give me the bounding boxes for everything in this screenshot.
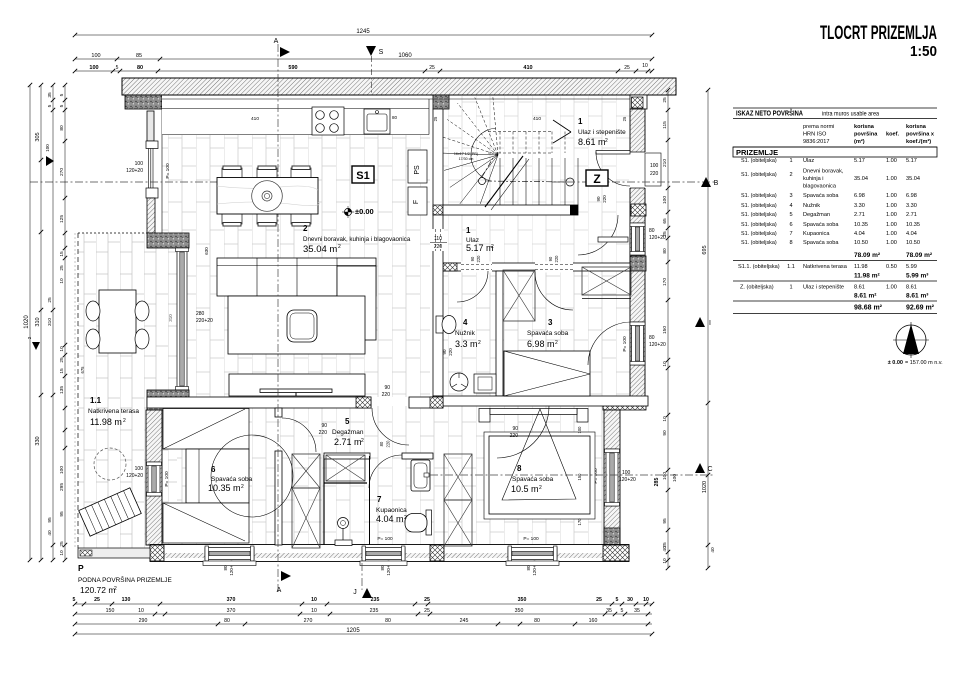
svg-text:10.50: 10.50 xyxy=(906,240,920,246)
svg-text:10: 10 xyxy=(662,416,668,422)
svg-text:85: 85 xyxy=(136,53,142,59)
svg-text:1.00: 1.00 xyxy=(886,285,897,291)
svg-text:90: 90 xyxy=(321,423,327,429)
svg-text:S1. (obiteljska): S1. (obiteljska) xyxy=(741,158,777,164)
svg-text:8.61: 8.61 xyxy=(854,285,865,291)
svg-text:0.50: 0.50 xyxy=(886,264,897,270)
svg-text:220: 220 xyxy=(510,433,519,439)
svg-text:100: 100 xyxy=(135,466,144,472)
svg-text:35: 35 xyxy=(606,608,612,614)
svg-text:3: 3 xyxy=(789,193,792,199)
svg-text:1: 1 xyxy=(578,117,583,126)
svg-text:blagovaonica: blagovaonica xyxy=(803,184,837,190)
svg-text:Kupaonica: Kupaonica xyxy=(803,231,830,237)
svg-text:1: 1 xyxy=(789,158,792,164)
svg-text:5.17: 5.17 xyxy=(854,158,865,164)
svg-text:Kupaonica: Kupaonica xyxy=(376,507,407,514)
svg-text:100: 100 xyxy=(45,144,50,152)
svg-text:235: 235 xyxy=(371,597,380,603)
svg-text:16x17 1/2 (PR): 16x17 1/2 (PR) xyxy=(454,152,478,156)
svg-text:92.69 m²: 92.69 m² xyxy=(906,305,935,312)
svg-text:25: 25 xyxy=(47,297,53,303)
svg-text:270: 270 xyxy=(59,168,65,176)
svg-text:25: 25 xyxy=(59,265,65,271)
svg-text:1.00: 1.00 xyxy=(886,212,897,218)
svg-text:220: 220 xyxy=(476,255,481,263)
svg-text:40: 40 xyxy=(47,530,53,536)
svg-text:S1. (obiteljska): S1. (obiteljska) xyxy=(741,231,777,237)
svg-text:2: 2 xyxy=(491,244,494,250)
svg-text:170: 170 xyxy=(662,278,668,286)
svg-text:Degažman: Degažman xyxy=(803,212,830,218)
svg-text:5: 5 xyxy=(59,104,65,107)
svg-text:Natkrivena terasa: Natkrivena terasa xyxy=(803,264,848,270)
svg-text:1.00: 1.00 xyxy=(886,193,897,199)
svg-text:5: 5 xyxy=(616,597,619,603)
svg-text:7: 7 xyxy=(377,495,382,504)
svg-text:kuhinja i: kuhinja i xyxy=(803,176,824,182)
svg-text:korisna: korisna xyxy=(854,124,875,130)
svg-text:120.72 m: 120.72 m xyxy=(80,585,115,595)
svg-text:P= 100: P= 100 xyxy=(377,536,393,542)
svg-text:Dnevni boravak, kuhinja i blag: Dnevni boravak, kuhinja i blagovaonica xyxy=(303,236,411,243)
svg-text:3.3 m: 3.3 m xyxy=(455,339,478,349)
svg-text:95: 95 xyxy=(59,511,65,517)
svg-text:15: 15 xyxy=(59,368,65,374)
svg-text:8: 8 xyxy=(517,464,522,473)
svg-text:100: 100 xyxy=(89,65,98,71)
svg-text:Spavaća soba: Spavaća soba xyxy=(211,476,253,483)
svg-text:S1. (obiteljska): S1. (obiteljska) xyxy=(741,203,777,209)
svg-text:150: 150 xyxy=(577,473,582,481)
svg-text:1245: 1245 xyxy=(356,29,370,35)
svg-text:1.00: 1.00 xyxy=(886,222,897,228)
svg-text:2: 2 xyxy=(361,438,364,444)
svg-text:PS: PS xyxy=(414,165,421,175)
svg-text:150: 150 xyxy=(106,608,115,614)
svg-text:1020: 1020 xyxy=(24,315,30,329)
svg-text:ISKAZ NETO POVRŠINA: ISKAZ NETO POVRŠINA xyxy=(736,109,803,118)
svg-text:15: 15 xyxy=(59,251,65,257)
svg-text:Spavaća soba: Spavaća soba xyxy=(803,193,839,199)
svg-text:40: 40 xyxy=(662,546,668,552)
svg-text:S1. (obiteljska): S1. (obiteljska) xyxy=(741,172,777,178)
svg-text:1.1: 1.1 xyxy=(90,396,102,405)
svg-text:2: 2 xyxy=(605,138,608,144)
svg-text:35.04 m: 35.04 m xyxy=(303,244,337,255)
svg-text:35: 35 xyxy=(47,92,53,98)
svg-text:1.00: 1.00 xyxy=(886,158,897,164)
svg-text:220: 220 xyxy=(434,244,443,250)
svg-text:80: 80 xyxy=(649,228,655,234)
svg-text:Spavaća soba: Spavaća soba xyxy=(803,222,839,228)
svg-text:410: 410 xyxy=(533,116,541,122)
svg-text:2: 2 xyxy=(114,586,117,592)
svg-text:120+20: 120+20 xyxy=(126,168,143,174)
svg-text:2: 2 xyxy=(123,418,126,424)
svg-text:8.61 m: 8.61 m xyxy=(578,137,606,147)
svg-text:10: 10 xyxy=(311,597,317,603)
svg-text:2: 2 xyxy=(478,340,481,346)
svg-text:Nužnik: Nužnik xyxy=(803,203,820,209)
svg-text:100: 100 xyxy=(59,466,65,474)
svg-text:5: 5 xyxy=(116,65,119,71)
svg-text:310: 310 xyxy=(35,317,41,326)
svg-text:1:50: 1:50 xyxy=(910,44,937,60)
svg-text:Spavaća soba: Spavaća soba xyxy=(803,240,839,246)
svg-text:310: 310 xyxy=(47,318,53,326)
svg-text:120+20: 120+20 xyxy=(649,342,666,348)
svg-text:J: J xyxy=(353,589,357,596)
svg-text:11.98: 11.98 xyxy=(854,264,868,270)
svg-text:130: 130 xyxy=(122,597,131,603)
svg-text:(m²): (m²) xyxy=(854,138,865,145)
svg-text:10: 10 xyxy=(59,346,65,352)
svg-text:Dnevni boravak,: Dnevni boravak, xyxy=(803,169,844,175)
svg-text:1.00: 1.00 xyxy=(886,231,897,237)
svg-text:115: 115 xyxy=(662,121,668,129)
svg-text:10: 10 xyxy=(642,63,648,69)
svg-text:695: 695 xyxy=(702,245,708,254)
svg-text:11.98 m: 11.98 m xyxy=(90,417,122,427)
svg-text:2.71: 2.71 xyxy=(854,212,865,218)
svg-text:5: 5 xyxy=(73,597,76,603)
svg-text:površina x: površina x xyxy=(906,132,935,138)
svg-text:100: 100 xyxy=(91,53,100,59)
svg-text:korisna: korisna xyxy=(906,124,927,130)
svg-text:305: 305 xyxy=(35,132,41,141)
svg-text:350: 350 xyxy=(515,608,524,614)
svg-text:9836:2017: 9836:2017 xyxy=(803,139,829,145)
svg-text:3.30: 3.30 xyxy=(906,203,917,209)
svg-text:10.35: 10.35 xyxy=(906,222,920,228)
svg-text:Spavaća soba: Spavaća soba xyxy=(527,330,569,337)
svg-text:5.99: 5.99 xyxy=(906,264,917,270)
svg-text:95: 95 xyxy=(662,518,668,524)
svg-text:285: 285 xyxy=(654,478,660,487)
svg-text:3: 3 xyxy=(548,318,553,327)
svg-text:A: A xyxy=(274,38,279,45)
svg-text:25: 25 xyxy=(596,597,602,603)
svg-text:5: 5 xyxy=(789,212,792,218)
svg-text:6.98 m: 6.98 m xyxy=(527,339,555,349)
svg-text:1.00: 1.00 xyxy=(886,240,897,246)
svg-text:80: 80 xyxy=(534,618,540,624)
svg-text:80: 80 xyxy=(649,335,655,341)
svg-text:B: B xyxy=(714,180,719,187)
svg-text:S1. (obiteljska): S1. (obiteljska) xyxy=(741,240,777,246)
svg-text:± 0.00: ± 0.00 xyxy=(888,360,903,366)
svg-text:220: 220 xyxy=(319,430,328,436)
svg-text:4.04 m: 4.04 m xyxy=(376,514,404,524)
svg-text:4.04: 4.04 xyxy=(854,231,865,237)
svg-text:7: 7 xyxy=(789,231,792,237)
svg-text:2.71 m: 2.71 m xyxy=(334,437,362,447)
svg-text:10.5 m: 10.5 m xyxy=(511,484,539,494)
svg-text:8.61 m³: 8.61 m³ xyxy=(906,293,929,300)
svg-text:1: 1 xyxy=(466,226,471,235)
svg-text:90: 90 xyxy=(662,430,668,436)
svg-text:17/30 cm: 17/30 cm xyxy=(459,157,474,161)
svg-text:5: 5 xyxy=(621,608,624,614)
svg-text:78.09 m²: 78.09 m² xyxy=(906,252,933,259)
svg-text:25: 25 xyxy=(662,97,668,103)
svg-text:Degažman: Degažman xyxy=(332,429,364,436)
svg-text:630: 630 xyxy=(204,247,209,255)
svg-text:5: 5 xyxy=(47,104,53,107)
svg-text:220: 220 xyxy=(602,195,607,203)
svg-text:prema normi: prema normi xyxy=(803,124,834,130)
svg-text:80: 80 xyxy=(223,565,228,571)
svg-text:10.35: 10.35 xyxy=(854,222,868,228)
svg-text:10: 10 xyxy=(59,278,65,284)
svg-text:310: 310 xyxy=(168,314,173,322)
svg-text:210: 210 xyxy=(662,159,668,167)
svg-text:220: 220 xyxy=(650,171,659,177)
svg-text:120+20: 120+20 xyxy=(619,477,636,483)
svg-text:90: 90 xyxy=(512,426,518,432)
svg-text:10.50: 10.50 xyxy=(854,240,868,246)
svg-text:Natkrivena terasa: Natkrivena terasa xyxy=(88,408,139,415)
svg-text:3.30: 3.30 xyxy=(854,203,865,209)
svg-text:220+20: 220+20 xyxy=(196,318,213,324)
svg-text:25: 25 xyxy=(424,597,430,603)
svg-text:6.98: 6.98 xyxy=(906,193,917,199)
svg-text:Z. (obiteljska): Z. (obiteljska) xyxy=(740,285,774,291)
svg-text:1.00: 1.00 xyxy=(886,203,897,209)
svg-text:koef./(m²): koef./(m²) xyxy=(906,138,931,145)
svg-text:150: 150 xyxy=(662,326,668,334)
svg-text:25: 25 xyxy=(59,357,65,363)
svg-text:S1. (obiteljska): S1. (obiteljska) xyxy=(741,212,777,218)
svg-text:intra muros usable area: intra muros usable area xyxy=(822,111,879,118)
svg-text:6: 6 xyxy=(211,465,216,474)
svg-text:4.04: 4.04 xyxy=(906,231,917,237)
svg-text:2: 2 xyxy=(404,515,407,521)
svg-text:Ulaz i stepenište: Ulaz i stepenište xyxy=(803,285,844,291)
svg-text:410: 410 xyxy=(523,65,532,71)
svg-text:135: 135 xyxy=(59,386,65,394)
svg-text:280: 280 xyxy=(196,311,205,317)
svg-text:10: 10 xyxy=(662,558,668,564)
svg-text:220: 220 xyxy=(448,348,453,356)
svg-text:100: 100 xyxy=(650,163,659,169)
svg-text:90: 90 xyxy=(442,349,447,355)
svg-text:90: 90 xyxy=(470,256,475,261)
svg-text:1.1: 1.1 xyxy=(787,264,795,270)
svg-text:HRN ISO: HRN ISO xyxy=(803,132,827,138)
svg-text:80: 80 xyxy=(392,115,398,120)
svg-text:25: 25 xyxy=(424,608,430,614)
svg-text:8.61: 8.61 xyxy=(906,285,917,291)
svg-text:290: 290 xyxy=(139,618,148,624)
svg-text:1020: 1020 xyxy=(702,481,708,493)
svg-text:35.04: 35.04 xyxy=(854,176,868,182)
svg-text:2: 2 xyxy=(539,485,542,491)
svg-text:40: 40 xyxy=(710,547,716,553)
svg-text:120+20: 120+20 xyxy=(126,473,143,479)
svg-text:8: 8 xyxy=(789,240,792,246)
svg-text:25: 25 xyxy=(433,116,438,121)
svg-text:2: 2 xyxy=(789,172,792,178)
svg-text:1205: 1205 xyxy=(346,628,360,634)
svg-text:270: 270 xyxy=(304,618,313,624)
svg-text:površina: površina xyxy=(854,132,878,138)
svg-text:2: 2 xyxy=(241,484,244,490)
svg-text:P= 100: P= 100 xyxy=(622,336,628,352)
svg-text:PODNA POVRŠINA PRIZEMLJE: PODNA POVRŠINA PRIZEMLJE xyxy=(78,575,172,584)
svg-text:1060: 1060 xyxy=(398,53,412,59)
svg-text:100: 100 xyxy=(577,426,582,434)
svg-text:8.61 m²: 8.61 m² xyxy=(854,293,877,300)
svg-text:±0.00: ±0.00 xyxy=(355,207,374,216)
svg-text:S1. (obiteljska): S1. (obiteljska) xyxy=(741,222,777,228)
svg-text:95: 95 xyxy=(47,517,53,523)
svg-text:410: 410 xyxy=(251,116,259,122)
svg-text:P: P xyxy=(78,563,84,573)
svg-text:2: 2 xyxy=(555,340,558,346)
svg-text:80: 80 xyxy=(385,618,391,624)
svg-text:170: 170 xyxy=(577,518,582,526)
svg-text:370: 370 xyxy=(227,597,236,603)
svg-text:78.09 m²: 78.09 m² xyxy=(854,252,881,259)
svg-text:330: 330 xyxy=(35,436,41,445)
svg-text:25: 25 xyxy=(662,231,668,237)
svg-text:590: 590 xyxy=(288,65,297,71)
svg-text:65: 65 xyxy=(662,218,668,224)
svg-text:80: 80 xyxy=(224,618,230,624)
svg-text:Z: Z xyxy=(593,172,600,186)
svg-text:5.17 m: 5.17 m xyxy=(466,243,494,253)
svg-text:80: 80 xyxy=(379,441,384,446)
svg-text:220: 220 xyxy=(382,392,391,398)
svg-text:125: 125 xyxy=(59,215,65,223)
svg-text:25: 25 xyxy=(94,597,100,603)
svg-text:90: 90 xyxy=(596,196,601,202)
svg-text:10: 10 xyxy=(138,608,144,614)
svg-text:80: 80 xyxy=(380,565,385,571)
svg-text:25: 25 xyxy=(429,65,435,71)
svg-text:5: 5 xyxy=(59,93,65,96)
svg-text:25: 25 xyxy=(624,65,630,71)
svg-text:4: 4 xyxy=(463,318,468,327)
svg-text:5.99 m³: 5.99 m³ xyxy=(906,273,929,280)
svg-text:TLOCRT PRIZEMLJA: TLOCRT PRIZEMLJA xyxy=(820,22,937,44)
svg-text:S1: S1 xyxy=(356,170,369,182)
svg-text:10: 10 xyxy=(643,597,649,603)
svg-text:10: 10 xyxy=(59,550,65,556)
svg-text:6: 6 xyxy=(789,222,792,228)
svg-text:P= 100: P= 100 xyxy=(164,471,170,487)
svg-text:90: 90 xyxy=(548,256,553,261)
svg-text:90: 90 xyxy=(384,385,390,391)
svg-text:220: 220 xyxy=(386,440,391,448)
svg-text:Nužnik: Nužnik xyxy=(455,330,476,337)
svg-text:30: 30 xyxy=(627,597,633,603)
svg-text:I: I xyxy=(709,320,711,327)
svg-text:100: 100 xyxy=(672,474,678,482)
svg-text:100: 100 xyxy=(662,472,668,480)
svg-text:675: 675 xyxy=(80,366,85,374)
svg-text:S1.1. (obiteljska): S1.1. (obiteljska) xyxy=(738,264,780,270)
svg-text:100: 100 xyxy=(135,161,144,167)
svg-text:245: 245 xyxy=(460,618,469,624)
svg-text:koef.: koef. xyxy=(886,132,900,138)
svg-text:160: 160 xyxy=(589,618,598,624)
svg-text:P= 100: P= 100 xyxy=(523,536,539,542)
svg-text:80: 80 xyxy=(59,125,65,131)
svg-text:350: 350 xyxy=(518,597,527,603)
svg-text:220: 220 xyxy=(554,255,559,263)
svg-text:80: 80 xyxy=(526,565,531,571)
svg-text:35: 35 xyxy=(634,608,640,614)
svg-text:4: 4 xyxy=(789,203,792,209)
svg-text:80: 80 xyxy=(662,248,668,254)
svg-text:370: 370 xyxy=(227,608,236,614)
svg-text:100: 100 xyxy=(662,196,668,204)
svg-text:F: F xyxy=(413,200,420,204)
svg-text:2.71: 2.71 xyxy=(906,212,917,218)
svg-text:10: 10 xyxy=(662,361,668,367)
svg-text:10: 10 xyxy=(311,608,317,614)
svg-text:S1. (obiteljska): S1. (obiteljska) xyxy=(741,193,777,199)
svg-text:PRIZEMLJE: PRIZEMLJE xyxy=(736,148,778,157)
svg-text:110: 110 xyxy=(434,236,442,242)
svg-text:80: 80 xyxy=(137,65,143,71)
svg-text:P= 100: P= 100 xyxy=(165,163,171,179)
svg-text:= 157.00 m n.v.: = 157.00 m n.v. xyxy=(905,360,943,366)
svg-text:1: 1 xyxy=(789,285,792,291)
svg-text:25: 25 xyxy=(622,116,627,121)
svg-text:C: C xyxy=(707,466,712,473)
svg-text:5.17: 5.17 xyxy=(906,158,917,164)
svg-text:11.98 m²: 11.98 m² xyxy=(854,273,880,280)
svg-text:10.35 m: 10.35 m xyxy=(208,483,241,493)
svg-text:2: 2 xyxy=(338,244,341,250)
svg-text:Ulaz i stepenište: Ulaz i stepenište xyxy=(578,129,626,136)
svg-text:6.98: 6.98 xyxy=(854,193,865,199)
svg-text:S: S xyxy=(379,49,384,56)
svg-text:295: 295 xyxy=(59,483,65,491)
svg-text:98.68 m²: 98.68 m² xyxy=(854,305,883,312)
svg-text:35.04: 35.04 xyxy=(906,176,920,182)
svg-text:Spavaća soba: Spavaća soba xyxy=(512,476,554,483)
svg-text:2: 2 xyxy=(303,224,308,233)
svg-text:235: 235 xyxy=(370,608,379,614)
svg-text:A: A xyxy=(277,587,282,594)
svg-text:1.00: 1.00 xyxy=(886,176,897,182)
svg-text:5: 5 xyxy=(345,417,350,426)
svg-text:Ulaz: Ulaz xyxy=(803,158,814,164)
svg-text:25: 25 xyxy=(59,541,65,547)
